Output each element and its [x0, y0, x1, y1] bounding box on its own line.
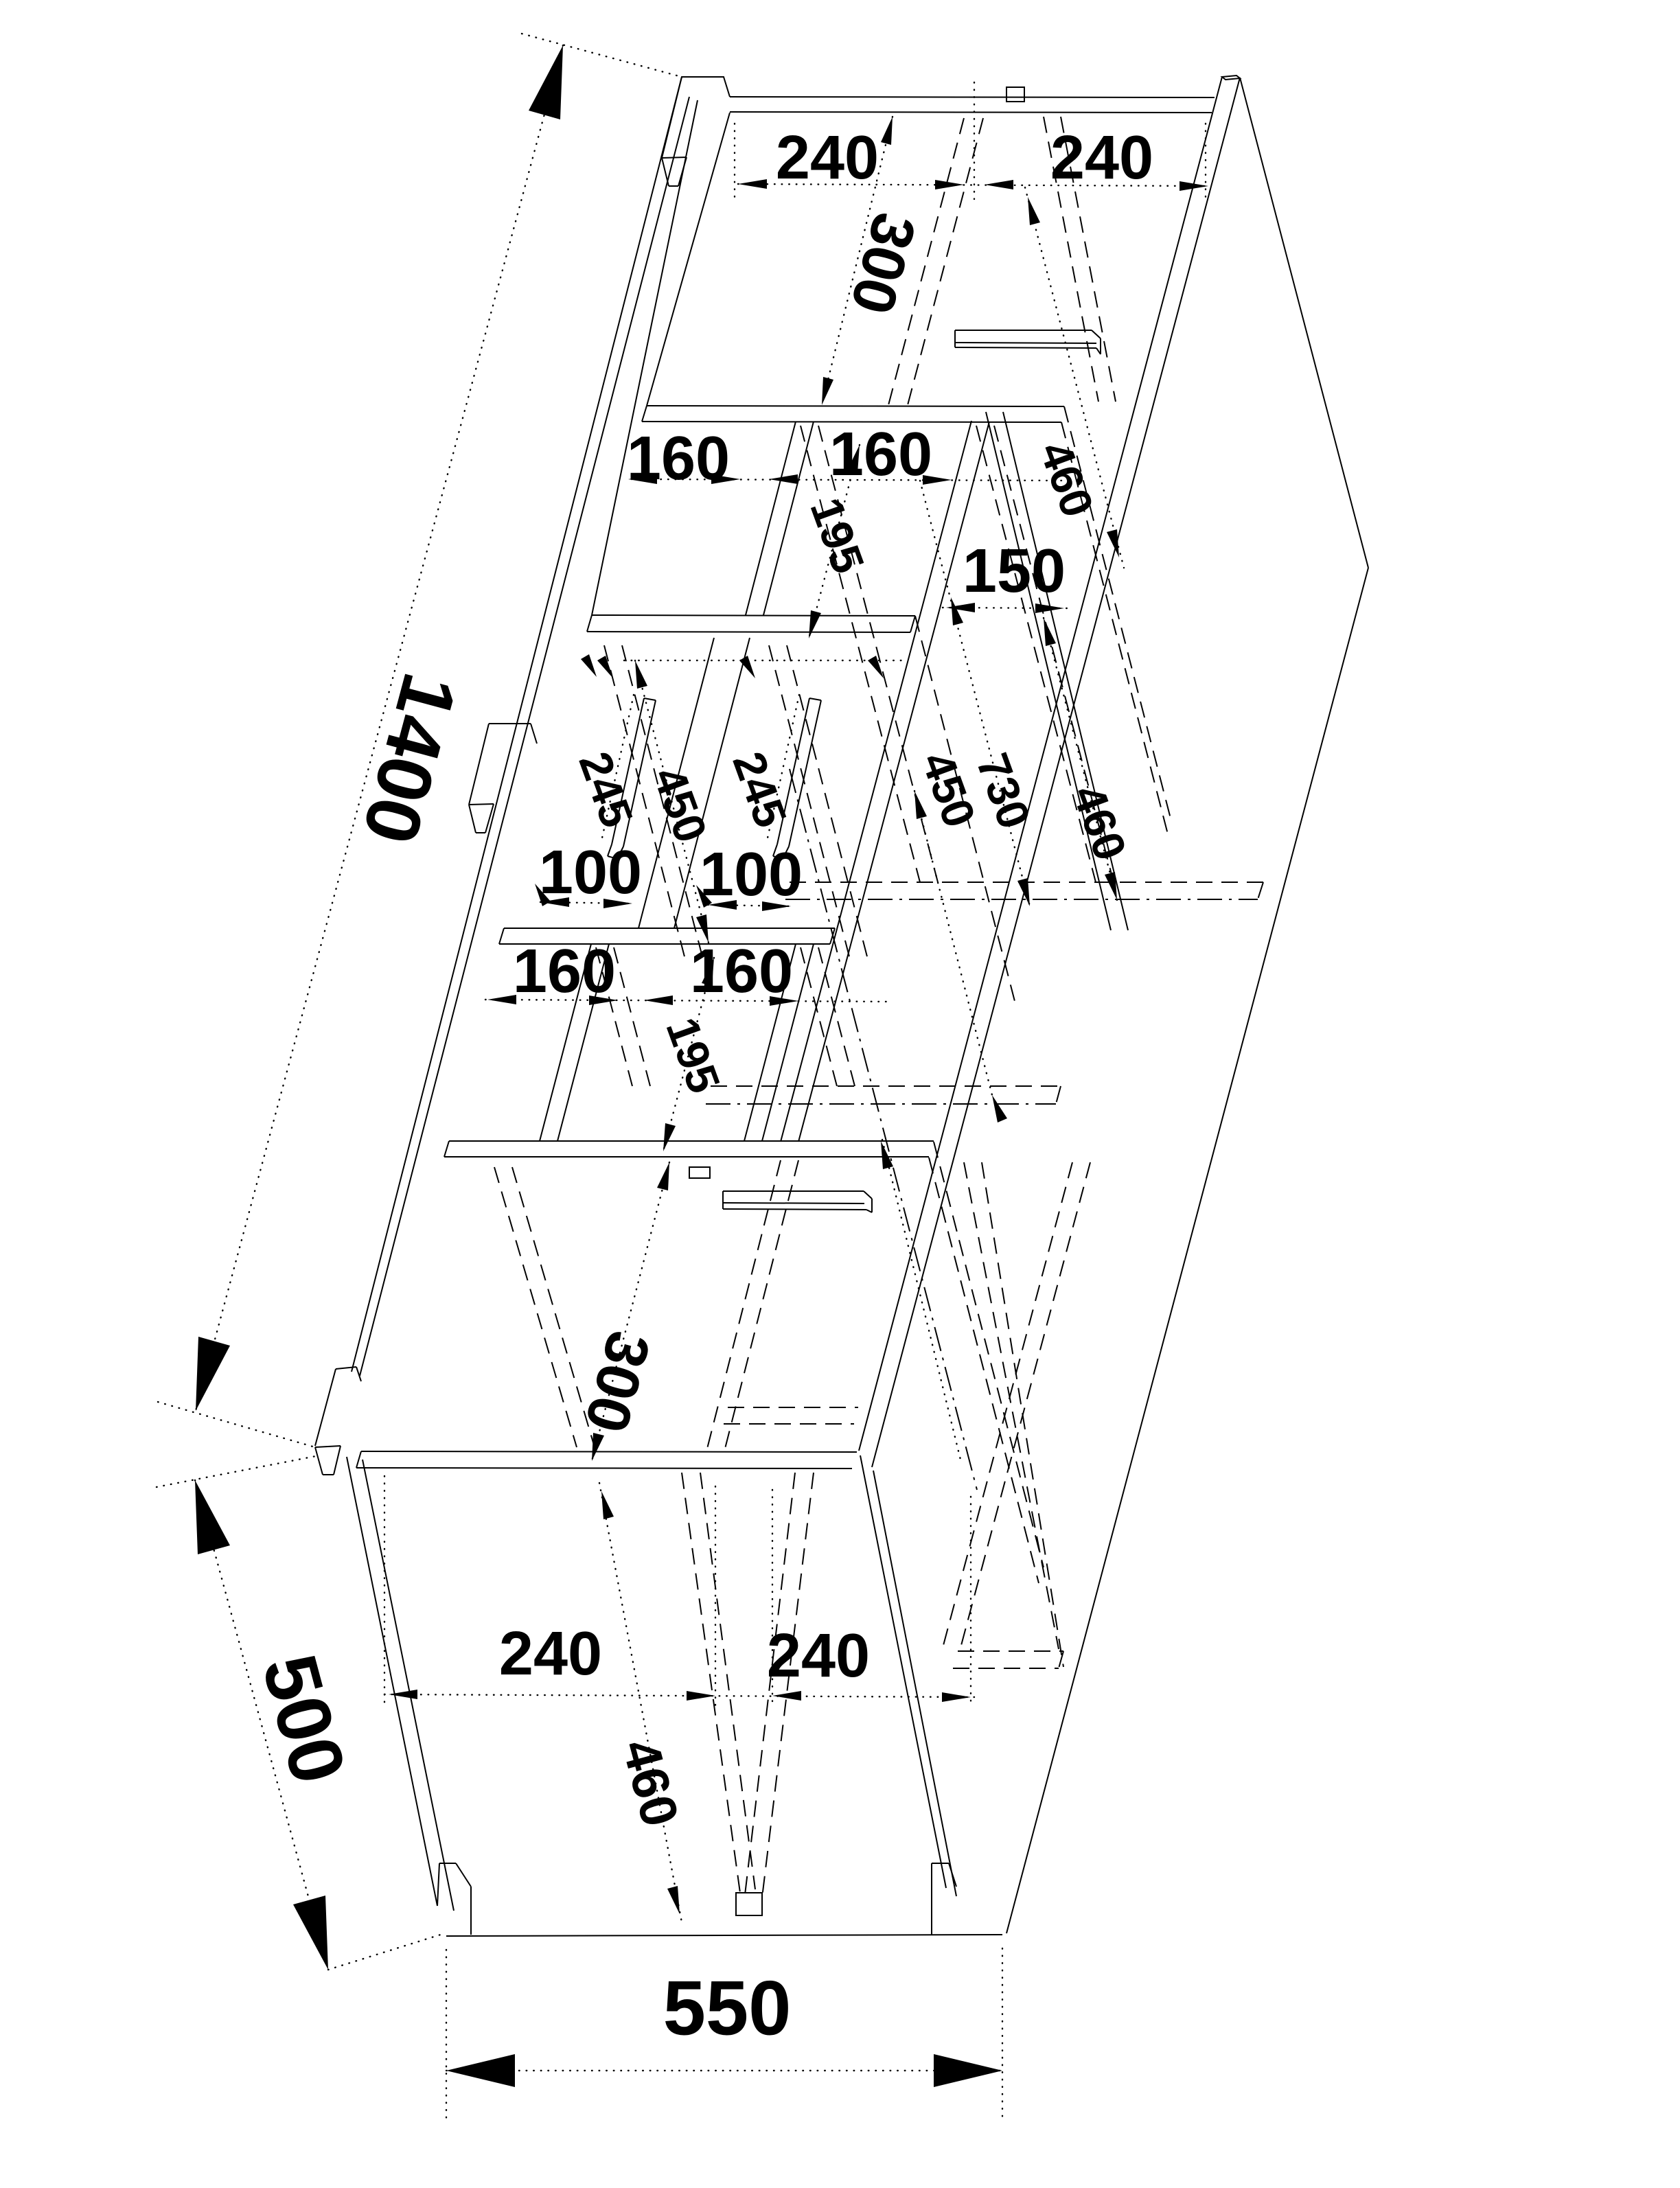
- svg-text:100: 100: [539, 838, 642, 907]
- svg-text:240: 240: [1050, 124, 1153, 192]
- svg-text:100: 100: [700, 840, 803, 909]
- svg-text:160: 160: [690, 937, 793, 1006]
- svg-text:240: 240: [499, 1620, 602, 1688]
- svg-text:240: 240: [776, 124, 879, 192]
- svg-text:160: 160: [627, 424, 730, 493]
- svg-text:150: 150: [963, 537, 1066, 606]
- svg-text:160: 160: [829, 420, 932, 489]
- svg-text:240: 240: [767, 1622, 870, 1690]
- svg-text:550: 550: [663, 1966, 792, 2051]
- svg-text:160: 160: [513, 937, 616, 1006]
